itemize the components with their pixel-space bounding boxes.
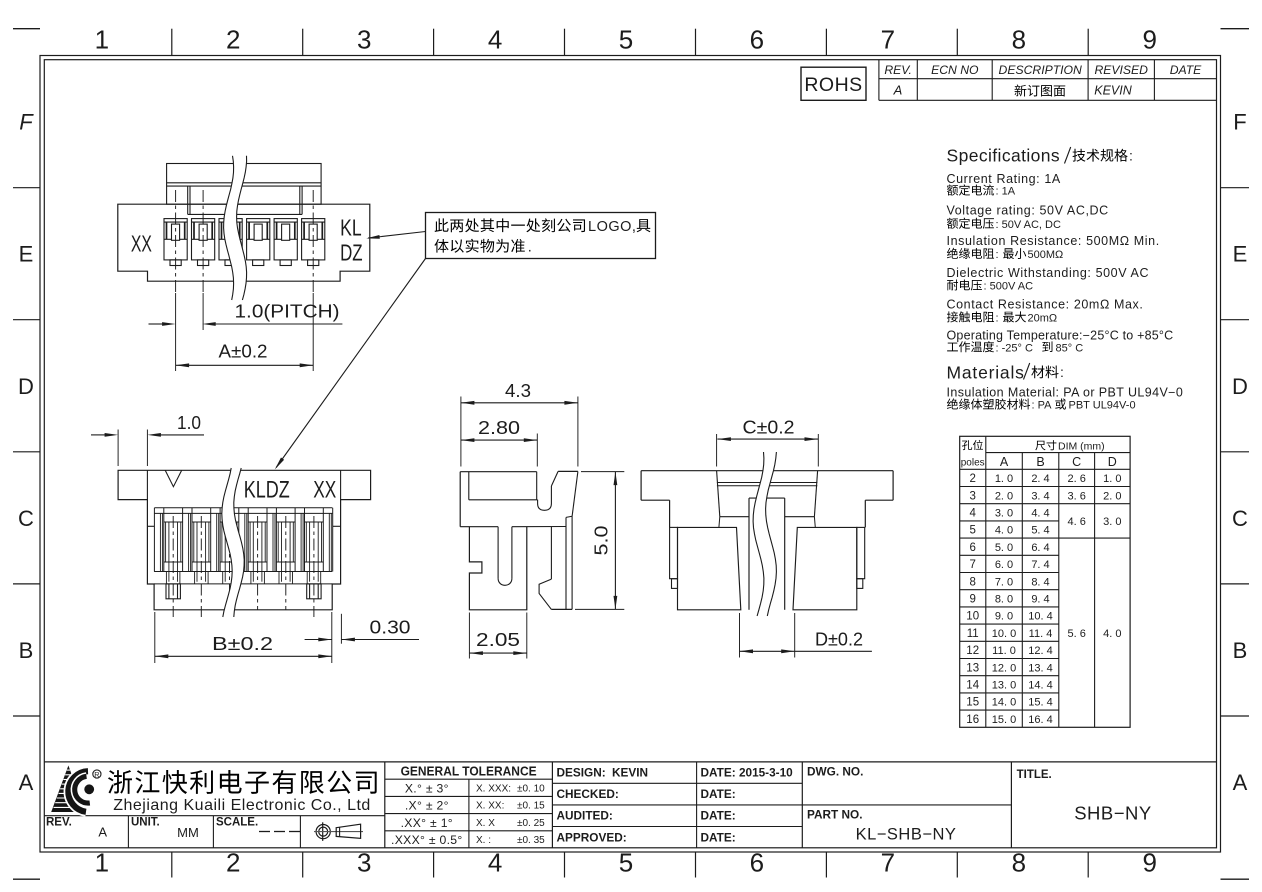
svg-text:±0. 35: ±0. 35	[517, 835, 545, 846]
svg-text:C±0.2: C±0.2	[743, 417, 795, 438]
svg-text:B: B	[1036, 455, 1044, 469]
svg-text:14: 14	[966, 680, 979, 692]
svg-text::: :	[1129, 148, 1133, 164]
svg-text:X.° ± 3°: X.° ± 3°	[405, 782, 449, 796]
svg-text:10: 10	[966, 611, 979, 623]
svg-text:0.30: 0.30	[370, 617, 411, 638]
svg-text:5: 5	[969, 525, 975, 537]
svg-text:X. X: X. X	[476, 818, 495, 829]
svg-text:2: 2	[226, 848, 240, 878]
svg-text:AUDITED:: AUDITED:	[557, 809, 613, 823]
svg-text:6: 6	[750, 848, 764, 878]
svg-text:B: B	[19, 638, 34, 663]
svg-text:XX: XX	[131, 231, 152, 257]
svg-text:APPROVED:: APPROVED:	[557, 830, 627, 844]
svg-text:8. 0: 8. 0	[995, 594, 1013, 606]
svg-text:Current Rating: 1A: Current Rating: 1A	[947, 172, 1061, 186]
svg-text:A±0.2: A±0.2	[219, 341, 268, 362]
svg-text:REV.: REV.	[46, 817, 72, 829]
svg-text:14. 0: 14. 0	[992, 697, 1016, 709]
svg-text:3: 3	[357, 848, 371, 878]
svg-text:±0. 15: ±0. 15	[517, 801, 545, 812]
svg-text:A: A	[1000, 455, 1009, 469]
svg-text:UNIT.: UNIT.	[131, 817, 160, 829]
svg-text:DATE: 2015-3-10: DATE: 2015-3-10	[701, 766, 794, 780]
svg-text:2: 2	[969, 473, 975, 485]
svg-text:9: 9	[1142, 25, 1156, 55]
svg-text:12. 0: 12. 0	[992, 662, 1016, 674]
svg-text:3. 6: 3. 6	[1068, 490, 1086, 502]
svg-text:SCALE.: SCALE.	[216, 817, 258, 829]
svg-text:KEVIN: KEVIN	[612, 766, 648, 780]
svg-text:11. 4: 11. 4	[1029, 628, 1053, 640]
svg-text:R: R	[94, 770, 99, 779]
svg-text:8: 8	[1012, 25, 1026, 55]
svg-text:±0. 10: ±0. 10	[517, 784, 545, 795]
svg-text:: 500V AC: : 500V AC	[984, 281, 1034, 293]
svg-text:CHECKED:: CHECKED:	[557, 787, 619, 801]
svg-text:4: 4	[488, 848, 502, 878]
svg-text:DESCRIPTION: DESCRIPTION	[999, 63, 1082, 77]
svg-text:ECN NO: ECN NO	[931, 63, 979, 77]
svg-text:: 50V AC, DC: : 50V AC, DC	[996, 219, 1061, 231]
svg-text:Insulation Resistance: 500: Insulation Resistance: 500MΩ Min.	[947, 234, 1160, 248]
svg-text:9: 9	[1142, 848, 1156, 878]
svg-text:TITLE.: TITLE.	[1017, 769, 1052, 781]
svg-text:2. 4: 2. 4	[1031, 473, 1049, 485]
svg-text:DATE:: DATE:	[701, 809, 736, 823]
svg-text:.X° ± 2°: .X° ± 2°	[405, 799, 449, 813]
svg-text:7: 7	[881, 25, 895, 55]
svg-text:.XXX° ± 0.5°: .XXX° ± 0.5°	[391, 833, 463, 847]
svg-text:GENERAL TOLERANCE: GENERAL TOLERANCE	[401, 763, 537, 778]
svg-text:KL−SHB−NY: KL−SHB−NY	[856, 826, 957, 844]
svg-text:85° C: 85° C	[1056, 342, 1084, 354]
svg-text:ROHS: ROHS	[804, 74, 862, 96]
svg-text:5.0: 5.0	[592, 526, 612, 556]
svg-text:5: 5	[619, 848, 633, 878]
svg-text:REVISED: REVISED	[1094, 63, 1148, 77]
svg-text:Dielectric Withstanding: 5: Dielectric Withstanding: 500V AC	[947, 266, 1150, 280]
svg-text:9. 0: 9. 0	[995, 611, 1013, 623]
svg-text:KL: KL	[340, 215, 362, 241]
svg-text:11. 0: 11. 0	[992, 645, 1016, 657]
svg-text:6: 6	[969, 542, 975, 554]
svg-text:15. 4: 15. 4	[1028, 697, 1052, 709]
svg-text:4. 0: 4. 0	[995, 525, 1013, 537]
svg-text:KLDZ: KLDZ	[244, 477, 290, 504]
svg-text:10. 4: 10. 4	[1028, 611, 1052, 623]
svg-text:4. 4: 4. 4	[1031, 508, 1049, 520]
svg-text:Voltage rating: 50V AC,DC: Voltage rating: 50V AC,DC	[947, 203, 1109, 217]
svg-text:2. 0: 2. 0	[995, 490, 1013, 502]
svg-text:3. 0: 3. 0	[995, 508, 1013, 520]
svg-text:DZ: DZ	[340, 240, 363, 266]
svg-text:15: 15	[966, 697, 979, 709]
svg-text:D: D	[18, 374, 34, 399]
svg-text:DATE: DATE	[1170, 63, 1202, 77]
svg-text:2: 2	[226, 25, 240, 55]
svg-text:A: A	[1233, 770, 1248, 795]
svg-text:B±0.2: B±0.2	[212, 633, 273, 654]
svg-text:A: A	[19, 770, 34, 795]
svg-text:: PA: : PA	[1032, 400, 1053, 412]
svg-text:8: 8	[969, 576, 975, 588]
svg-text:5. 6: 5. 6	[1068, 628, 1086, 640]
svg-text:Operating Temperature:−25°C: Operating Temperature:−25°C to +85°C	[947, 329, 1174, 343]
svg-text:2.80: 2.80	[478, 417, 520, 438]
svg-text:LOGO,: LOGO,	[588, 219, 636, 235]
svg-text:14. 4: 14. 4	[1028, 680, 1052, 692]
svg-text:1.0: 1.0	[177, 412, 201, 433]
svg-text:XX: XX	[313, 477, 336, 504]
svg-text:8. 4: 8. 4	[1031, 576, 1049, 588]
svg-text:13: 13	[966, 662, 979, 674]
svg-text:4: 4	[488, 25, 502, 55]
svg-text:C: C	[1072, 455, 1081, 469]
svg-text:A: A	[893, 83, 903, 98]
svg-text:±0. 25: ±0. 25	[517, 818, 545, 829]
svg-text:X. XX:: X. XX:	[476, 801, 504, 812]
svg-text:: -25° C: : -25° C	[996, 342, 1033, 354]
svg-text:DWG. NO.: DWG. NO.	[807, 765, 863, 779]
svg-text:X. XXX:: X. XXX:	[476, 784, 511, 795]
svg-text:poles: poles	[961, 457, 985, 468]
svg-text:.: .	[528, 240, 532, 256]
svg-text:6: 6	[750, 25, 764, 55]
svg-text:E: E	[19, 242, 34, 267]
svg-text:SHB−NY: SHB−NY	[1074, 802, 1152, 823]
svg-text:13. 4: 13. 4	[1028, 662, 1052, 674]
svg-text:6. 0: 6. 0	[995, 559, 1013, 571]
svg-text:13. 0: 13. 0	[992, 680, 1016, 692]
svg-text:D: D	[1232, 374, 1248, 399]
svg-text:Materials: Materials	[947, 362, 1025, 382]
svg-text:KEVIN: KEVIN	[1094, 84, 1132, 98]
svg-text:4.3: 4.3	[505, 380, 531, 401]
svg-text:11: 11	[967, 628, 979, 640]
svg-text:Zhejiang Kuaili Electronic: Zhejiang Kuaili Electronic Co., Ltd	[113, 797, 371, 814]
svg-text:A: A	[98, 825, 107, 840]
svg-text:7. 4: 7. 4	[1031, 559, 1049, 571]
svg-text:16: 16	[966, 714, 979, 726]
svg-text:D±0.2: D±0.2	[815, 628, 863, 649]
svg-text:2.05: 2.05	[476, 629, 520, 650]
svg-text:Insulation Material: PA or: Insulation Material: PA or PBT UL94V−0	[947, 386, 1184, 400]
svg-text:PBT UL94V-0: PBT UL94V-0	[1069, 400, 1136, 412]
svg-text:7: 7	[969, 559, 975, 571]
svg-text:4: 4	[969, 508, 976, 520]
svg-text:1: 1	[95, 25, 109, 55]
svg-text:16. 4: 16. 4	[1028, 714, 1052, 726]
svg-text:4. 0: 4. 0	[1103, 628, 1121, 640]
svg-text:10. 0: 10. 0	[992, 628, 1016, 640]
svg-text:3: 3	[357, 25, 371, 55]
svg-text:MM: MM	[177, 825, 199, 840]
svg-text:4. 6: 4. 6	[1068, 516, 1086, 528]
svg-text:DATE:: DATE:	[701, 830, 736, 844]
svg-text:F: F	[19, 110, 34, 135]
svg-text:12: 12	[966, 645, 979, 657]
svg-text:1: 1	[95, 848, 109, 878]
svg-text:DATE:: DATE:	[701, 787, 736, 801]
svg-text:3. 4: 3. 4	[1031, 490, 1049, 502]
svg-text:Specifications: Specifications	[947, 146, 1061, 166]
svg-text::: :	[996, 249, 999, 261]
svg-text:DIM (mm): DIM (mm)	[1058, 440, 1105, 452]
svg-text:9. 4: 9. 4	[1031, 594, 1049, 606]
svg-text:1.0(PITCH): 1.0(PITCH)	[235, 301, 340, 322]
svg-text:6. 4: 6. 4	[1031, 542, 1049, 554]
svg-text::: :	[1060, 364, 1064, 380]
svg-text:5. 0: 5. 0	[995, 542, 1013, 554]
svg-text:C: C	[18, 506, 34, 531]
svg-text:D: D	[1108, 455, 1117, 469]
svg-text:1. 0: 1. 0	[1103, 473, 1121, 485]
svg-text:12. 4: 12. 4	[1028, 645, 1052, 657]
svg-text:.XX° ± 1°: .XX° ± 1°	[401, 816, 453, 830]
svg-text:8: 8	[1012, 848, 1026, 878]
svg-text:5: 5	[619, 25, 633, 55]
svg-text:PART NO.: PART NO.	[807, 808, 863, 822]
svg-text:3: 3	[969, 490, 975, 502]
svg-text:C: C	[1232, 506, 1248, 531]
svg-text:5. 4: 5. 4	[1031, 525, 1049, 537]
svg-text:REV.: REV.	[884, 63, 912, 77]
svg-text:1. 0: 1. 0	[995, 473, 1013, 485]
svg-text:X. :: X. :	[476, 835, 491, 846]
svg-text:B: B	[1233, 638, 1248, 663]
svg-text:20mΩ: 20mΩ	[1028, 312, 1058, 324]
svg-text:500MΩ: 500MΩ	[1028, 249, 1064, 261]
svg-text:Contact Resistance: 20mΩ: Contact Resistance: 20mΩ Max.	[947, 298, 1144, 312]
svg-text:2. 6: 2. 6	[1068, 473, 1086, 485]
svg-text:2. 0: 2. 0	[1103, 490, 1121, 502]
svg-text:DESIGN:: DESIGN:	[557, 766, 606, 780]
svg-text:: 1A: : 1A	[996, 186, 1016, 198]
svg-text:9: 9	[969, 594, 975, 606]
svg-text::: :	[996, 312, 999, 324]
svg-text:15. 0: 15. 0	[992, 714, 1016, 726]
svg-text:E: E	[1233, 242, 1248, 267]
svg-text:F: F	[1233, 110, 1246, 135]
svg-text:3. 0: 3. 0	[1103, 516, 1121, 528]
svg-text:7: 7	[881, 848, 895, 878]
svg-text:7. 0: 7. 0	[995, 576, 1013, 588]
